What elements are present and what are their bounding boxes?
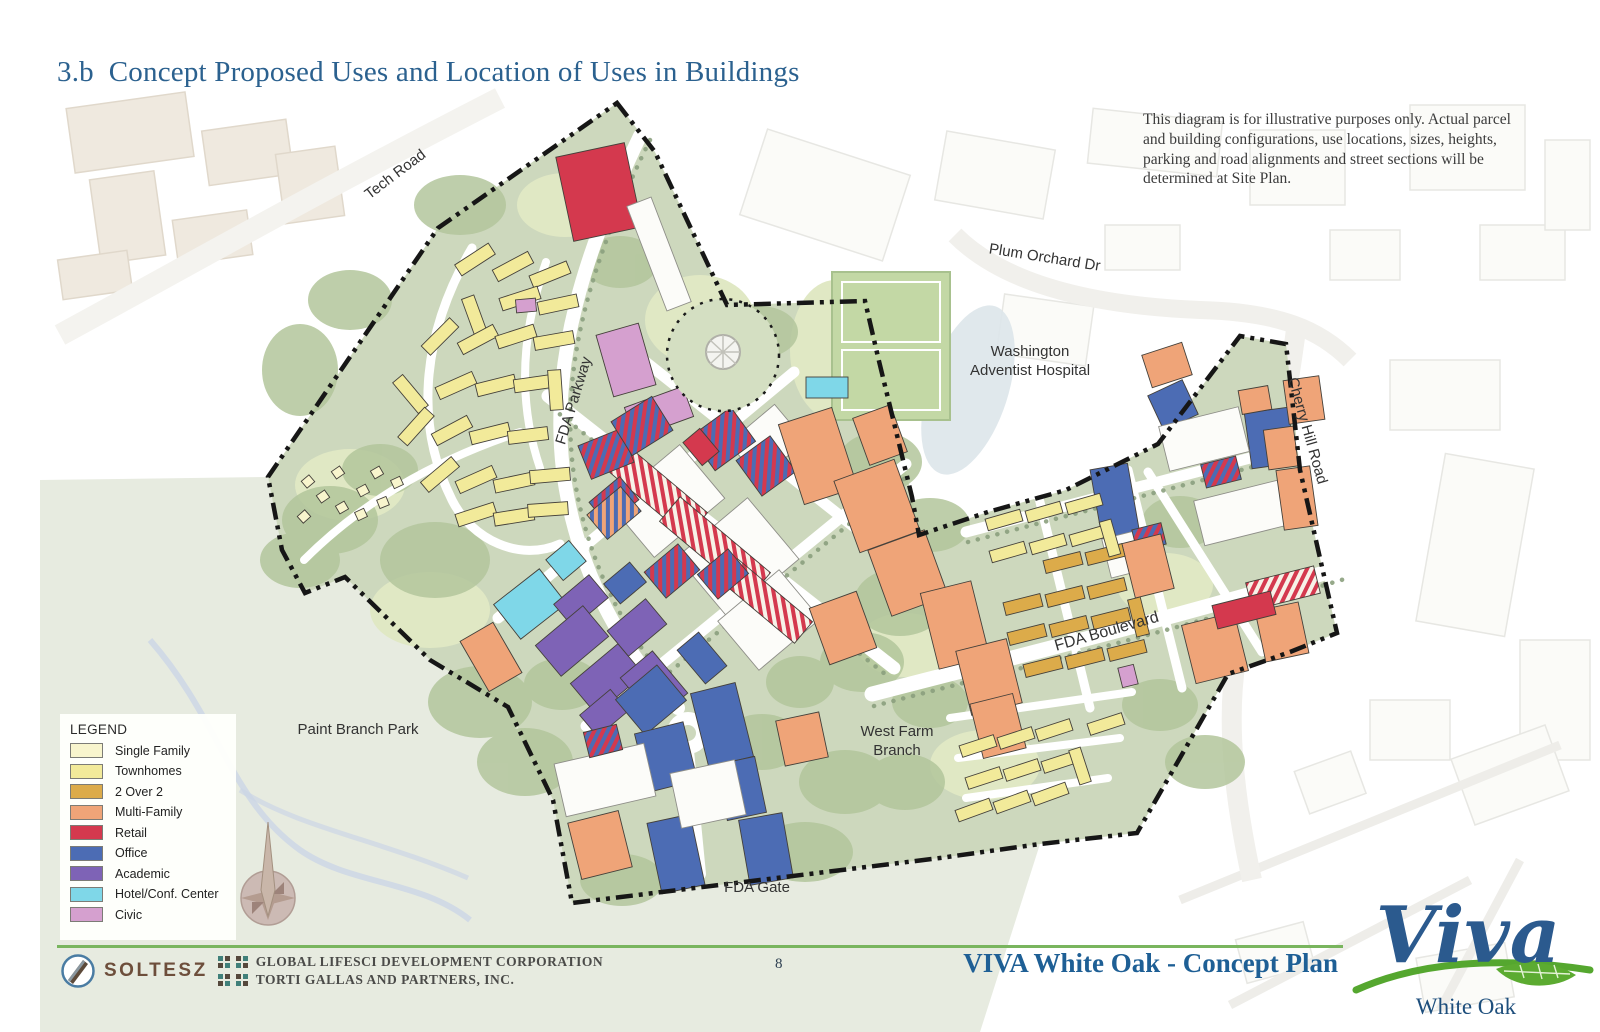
legend-swatch xyxy=(70,805,103,820)
building-mf xyxy=(776,712,829,766)
legend-swatch xyxy=(70,764,103,779)
building-mf xyxy=(1238,386,1272,415)
page-title: 3.b Concept Proposed Uses and Location o… xyxy=(57,56,800,89)
legend-swatch xyxy=(70,907,103,922)
legend-swatch xyxy=(70,866,103,881)
company-line-1: GLOBAL LIFESCI DEVELOPMENT CORPORATION xyxy=(256,953,603,971)
water-tower-icon xyxy=(667,299,779,411)
viva-white-oak-logo: Viva White Oak xyxy=(1348,876,1598,1030)
page-number: 8 xyxy=(775,956,783,973)
legend-item: Multi-Family xyxy=(70,805,226,820)
legend-label: Hotel/Conf. Center xyxy=(115,887,219,901)
legend-swatch xyxy=(70,887,103,902)
company-line-2: TORTI GALLAS AND PARTNERS, INC. xyxy=(256,971,603,989)
building-ho xyxy=(806,377,848,398)
legend-label: 2 Over 2 xyxy=(115,785,163,799)
legend-title: LEGEND xyxy=(70,722,226,737)
torti-gallas-grid-icon xyxy=(218,956,248,986)
legend-label: Single Family xyxy=(115,744,190,758)
legend-label: Townhomes xyxy=(115,764,182,778)
legend: LEGEND Single FamilyTownhomes2 Over 2Mul… xyxy=(60,714,236,940)
sports-field xyxy=(832,272,950,420)
legend-swatch xyxy=(70,784,103,799)
legend-label: Retail xyxy=(115,826,147,840)
building-th xyxy=(528,502,569,518)
legend-item: Retail xyxy=(70,825,226,840)
legend-label: Academic xyxy=(115,867,170,881)
viva-logo-text: Viva xyxy=(1376,890,1561,981)
legend-label: Multi-Family xyxy=(115,805,182,819)
legend-item: Townhomes xyxy=(70,764,226,779)
footer-left: SOLTESZ GLOBAL LIFESCI DEVELOPMENT CORPO… xyxy=(60,953,603,989)
legend-item: 2 Over 2 xyxy=(70,784,226,799)
map-label-fda-gate: FDA Gate xyxy=(724,879,790,896)
building-th xyxy=(548,370,564,411)
legend-items: Single FamilyTownhomes2 Over 2Multi-Fami… xyxy=(70,743,226,922)
legend-item: Office xyxy=(70,846,226,861)
disclaimer-text: This diagram is for illustrative purpose… xyxy=(1143,110,1521,189)
plan-title: VIVA White Oak - Concept Plan xyxy=(963,948,1338,979)
soltesz-wordmark: SOLTESZ xyxy=(104,960,208,982)
viva-logo-subtitle: White Oak xyxy=(1416,994,1517,1019)
company-names: GLOBAL LIFESCI DEVELOPMENT CORPORATION T… xyxy=(256,953,603,988)
legend-item: Hotel/Conf. Center xyxy=(70,887,226,902)
building-mf xyxy=(1263,426,1298,470)
legend-label: Office xyxy=(115,846,147,860)
legend-item: Academic xyxy=(70,866,226,881)
map-label-paint-branch-park: Paint Branch Park xyxy=(298,721,419,738)
building-mf xyxy=(1142,342,1192,387)
legend-swatch xyxy=(70,846,103,861)
legend-item: Civic xyxy=(70,907,226,922)
building-cv xyxy=(515,298,536,313)
legend-item: Single Family xyxy=(70,743,226,758)
legend-label: Civic xyxy=(115,908,142,922)
legend-swatch xyxy=(70,825,103,840)
legend-swatch xyxy=(70,743,103,758)
soltesz-logo-icon xyxy=(60,953,96,989)
svg-text:FDA Gate: FDA Gate xyxy=(724,879,790,896)
svg-text:Paint Branch Park: Paint Branch Park xyxy=(298,721,419,738)
